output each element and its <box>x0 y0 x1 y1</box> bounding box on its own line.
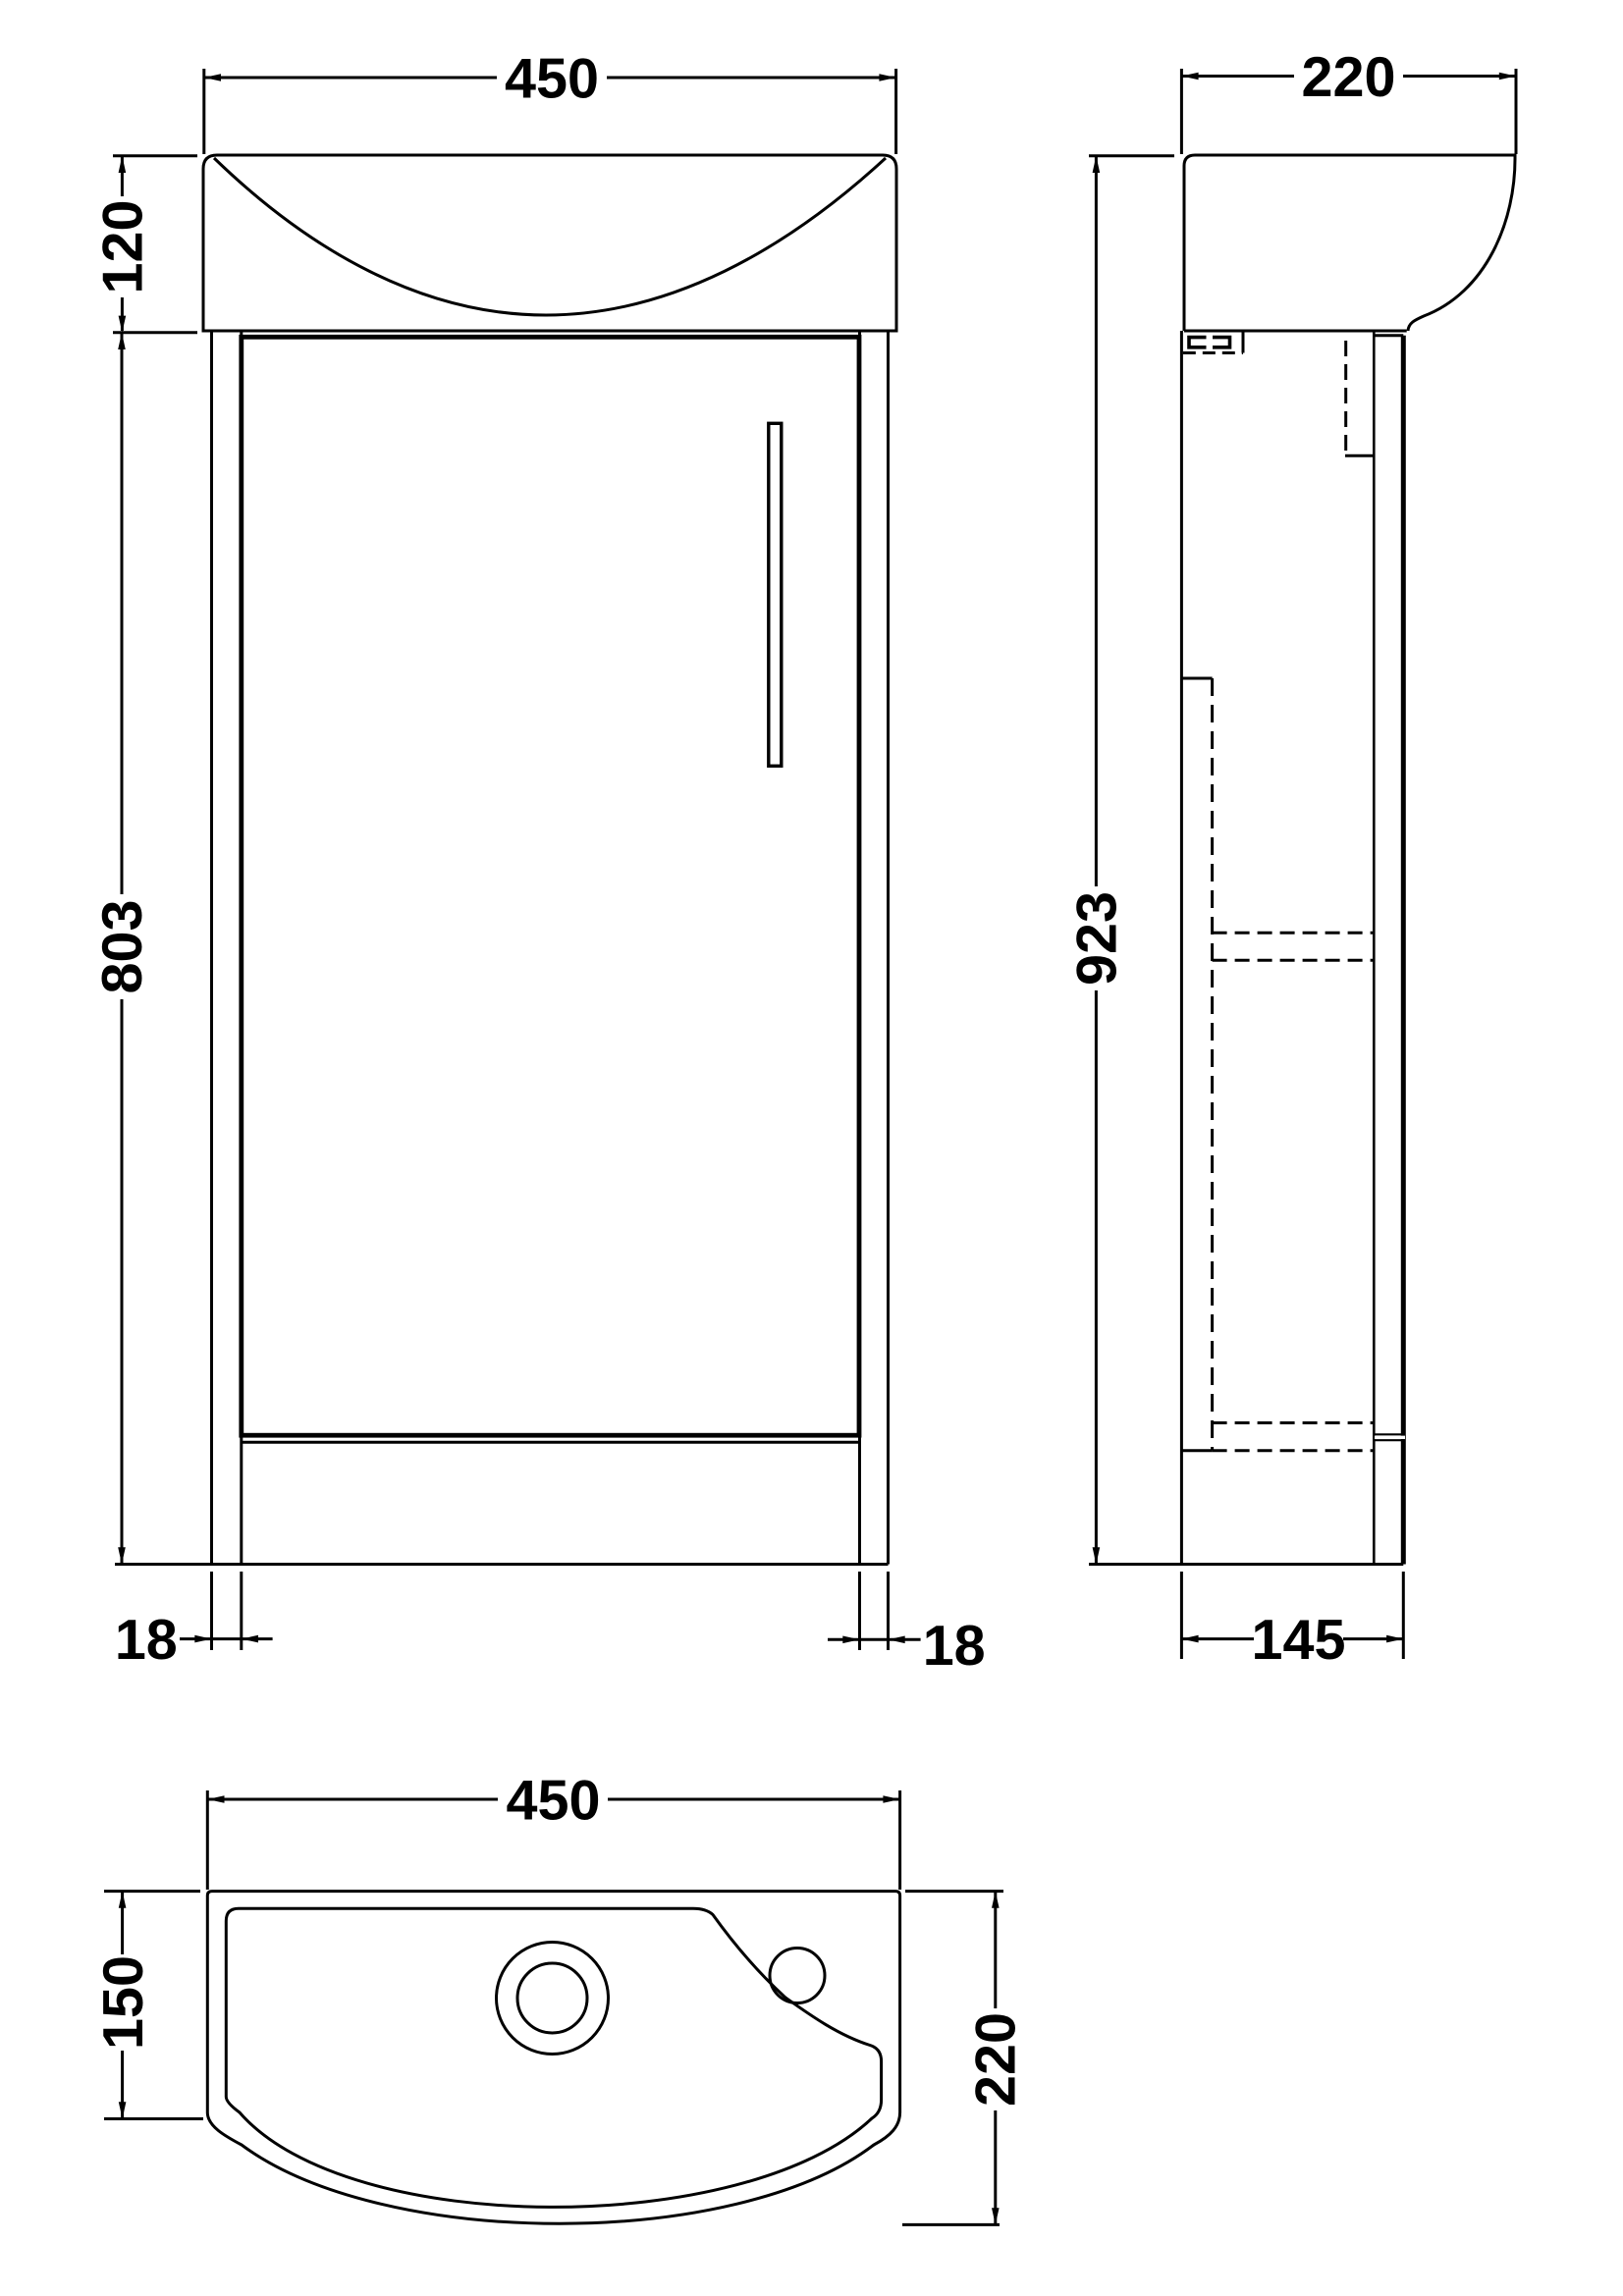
svg-text:120: 120 <box>92 200 155 294</box>
svg-text:18: 18 <box>115 1609 178 1672</box>
svg-text:145: 145 <box>1252 1609 1346 1672</box>
svg-text:450: 450 <box>505 48 599 111</box>
svg-text:220: 220 <box>1302 46 1396 109</box>
svg-text:803: 803 <box>91 900 154 994</box>
svg-text:923: 923 <box>1066 891 1129 986</box>
svg-text:18: 18 <box>923 1615 986 1678</box>
svg-text:150: 150 <box>92 1955 155 2050</box>
svg-text:450: 450 <box>507 1770 601 1833</box>
svg-text:220: 220 <box>965 2012 1028 2107</box>
